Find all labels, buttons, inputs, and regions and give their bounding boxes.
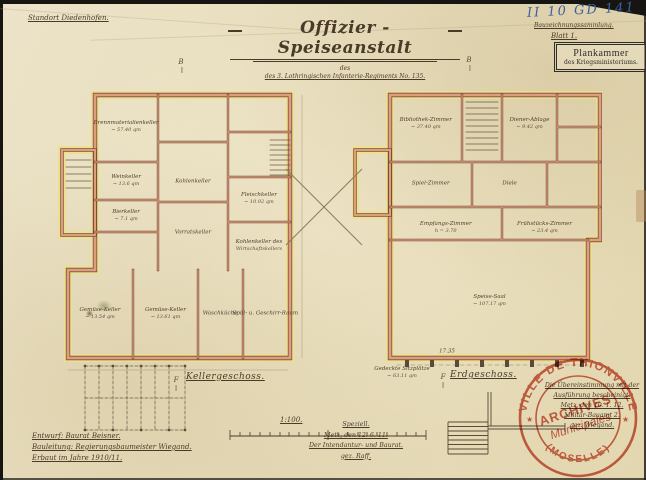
drawing-title: Offizier - Speiseanstalt	[230, 18, 460, 60]
section-marker: B	[466, 56, 471, 64]
stamp-arc-bottom: (MOSELLE)	[543, 442, 612, 465]
title-des: des	[230, 65, 460, 72]
stamp-star-right: ★	[622, 415, 629, 424]
room-label: Bierkeller~ 7.1 qm	[112, 209, 140, 223]
room-label: Frühstücks-Zimmer~ 23.4 qm	[517, 221, 572, 235]
paper-stain	[636, 190, 646, 222]
room-label: Diener-Ablage~ 9.42 qm	[509, 117, 549, 131]
plankammer-stamp-line1: Plankammer	[559, 48, 643, 59]
approval-center-line2: Metz, den 12. 6. 11.	[298, 431, 414, 442]
room-label: Vorratskeller	[175, 230, 211, 237]
kellergeschoss-walls	[58, 82, 314, 442]
room-label: Weinkeller~ 13.6 qm	[111, 174, 141, 188]
room-label: 17.35	[439, 348, 455, 355]
floor-plan-erdgeschoss: Bibliothek-Zimmer~ 37.40 qmDiener-Ablage…	[352, 82, 602, 382]
drawing-subtitle: des 3. Lothringischen Infanterie-Regimen…	[230, 73, 460, 80]
room-label: Fleischkeller~ 10.92 qm	[241, 192, 277, 206]
room-label: Gedeckte Sitzplätze~ 63.11 qm	[374, 366, 430, 380]
approval-center-line4: gez. Raff.	[298, 452, 414, 463]
archive-note: Bauzeichnungssammlung.	[534, 22, 614, 29]
credit-supervisor: Bauleitung: Regierungsbaumeister Wiegand…	[32, 442, 192, 453]
title-block: Offizier - Speiseanstalt des des 3. Loth…	[230, 18, 460, 80]
floor-plan-kellergeschoss: Brennmaterialienkeller~ 57.40 qmWeinkell…	[58, 82, 314, 442]
credit-built: Erbaut im Jahre 1910/11.	[32, 453, 192, 464]
scanned-architectural-drawing: Standort Diedenhofen. Offizier - Speisea…	[0, 0, 646, 480]
sheet-number: Blatt 1.	[551, 32, 577, 40]
room-label: Gemüse-Keller~ 13.54 qm	[79, 307, 120, 321]
room-label: Brennmaterialienkeller~ 57.40 qm	[94, 120, 159, 134]
room-label: Gemüse-Keller~ 13.61 qm	[145, 307, 186, 321]
plankammer-stamp-line2: des Kriegsministeriums.	[559, 59, 643, 66]
title-flourish	[448, 30, 462, 32]
svg-text:(MOSELLE): (MOSELLE)	[543, 442, 612, 465]
scan-edge-left	[0, 0, 3, 480]
cancellation-cross	[283, 163, 367, 251]
stamp-star-left: ★	[526, 415, 533, 424]
plan-title-erdgeschoss: Erdgeschoss.	[450, 370, 517, 380]
scan-edge-top	[0, 0, 646, 4]
room-label: Empfangs-Zimmerh = 3.70	[420, 221, 472, 235]
room-label: Bibliothek-Zimmer~ 37.40 qm	[400, 117, 452, 131]
section-marker: F	[441, 373, 446, 381]
plankammer-stamp: Plankammer des Kriegsministeriums.	[556, 44, 646, 70]
room-label: Diele	[502, 180, 516, 187]
room-label: Speise-Saal~ 107.17 qm	[473, 294, 506, 308]
room-label: Spiel-Zimmer	[412, 180, 450, 187]
approval-center-line1: Speziell.	[298, 420, 414, 431]
section-marker: F	[174, 376, 179, 384]
thionville-archive-stamp: VILLE DE THIONVILLE (MOSELLE) ARCHIVES M…	[514, 354, 642, 480]
credit-designer: Entwurf: Baurat Beisner.	[32, 431, 192, 442]
room-label: Kohlenkeller desWirtschaftskellers	[236, 239, 283, 253]
location-note: Standort Diedenhofen.	[28, 14, 109, 22]
title-flourish	[228, 30, 242, 32]
room-label: Spül- u. Geschirr-Raum	[233, 311, 299, 318]
section-marker: B	[178, 58, 183, 66]
credits-block: Entwurf: Baurat Beisner. Bauleitung: Reg…	[32, 431, 192, 464]
plan-title-kellergeschoss: Kellergeschoss.	[186, 372, 265, 382]
room-label: Kohlenkeller	[175, 179, 210, 186]
approval-center-line3: Der Intendantur- und Baurat.	[298, 441, 414, 452]
approval-note-center: Speziell. Metz, den 12. 6. 11. Der Inten…	[298, 420, 414, 462]
